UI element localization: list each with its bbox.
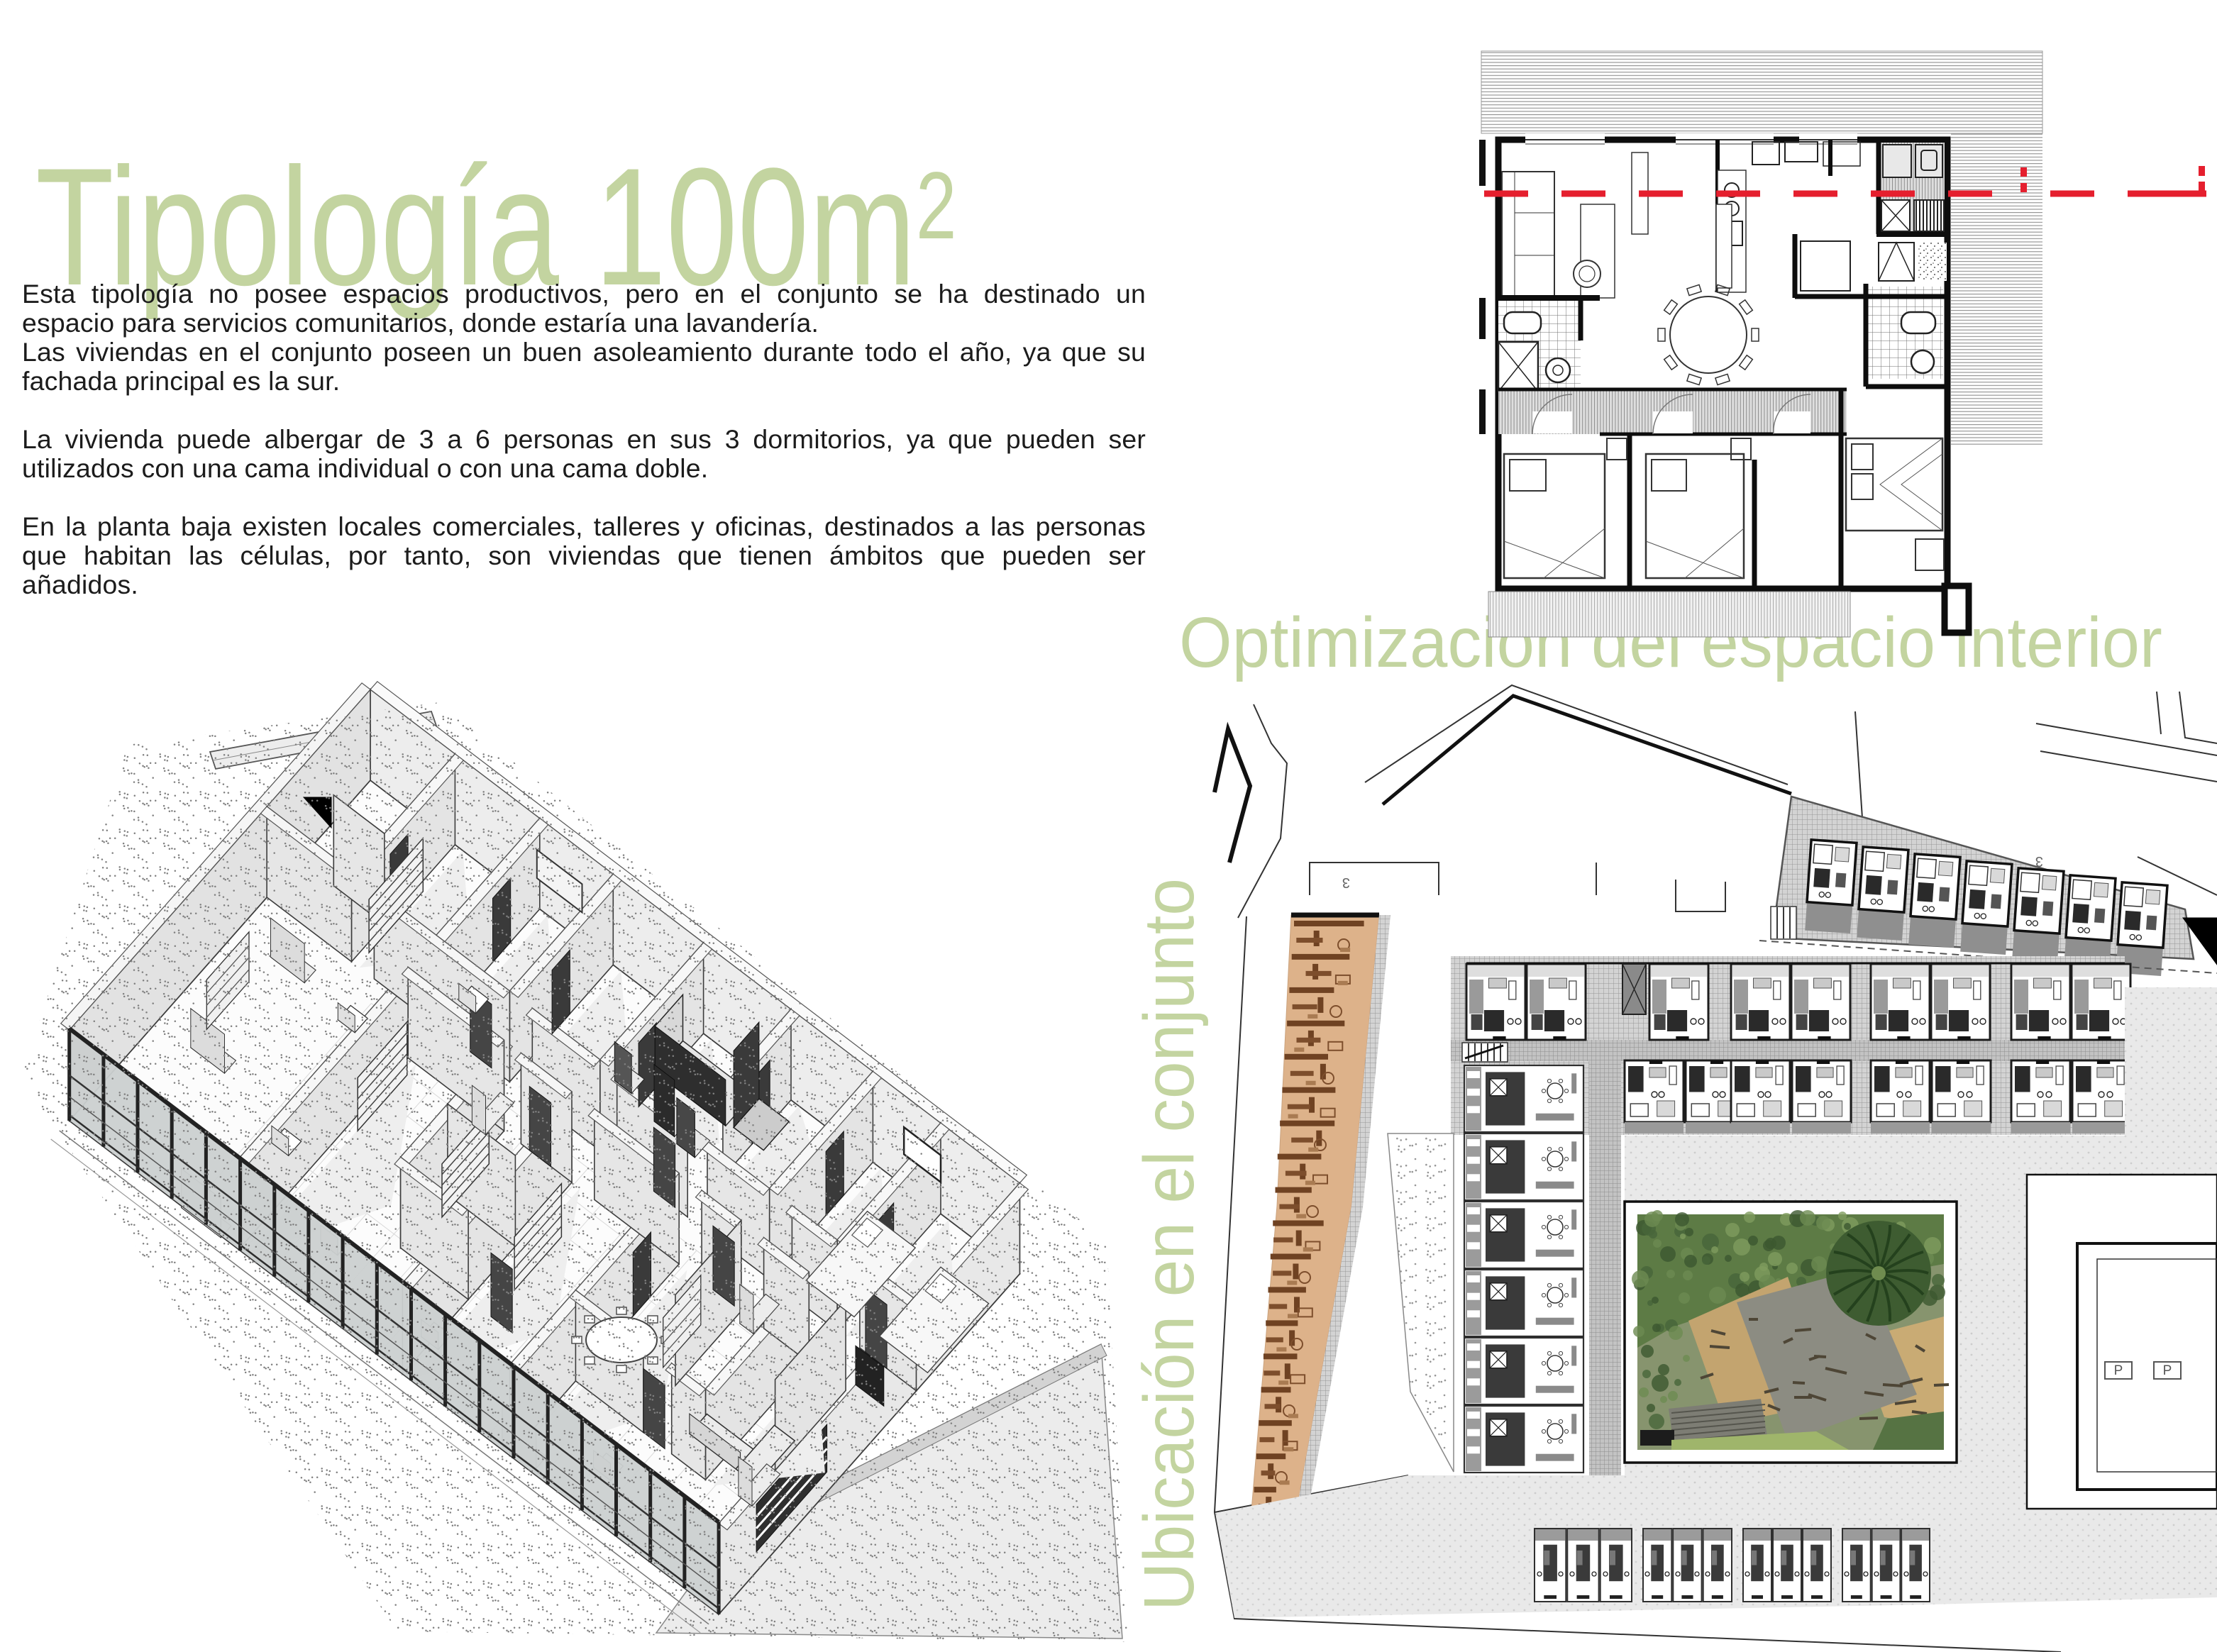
svg-text:P: P [2163, 1363, 2172, 1378]
svg-text:3: 3 [1342, 875, 1350, 890]
svg-text:3: 3 [2035, 853, 2043, 869]
svg-text:P: P [2114, 1363, 2123, 1378]
